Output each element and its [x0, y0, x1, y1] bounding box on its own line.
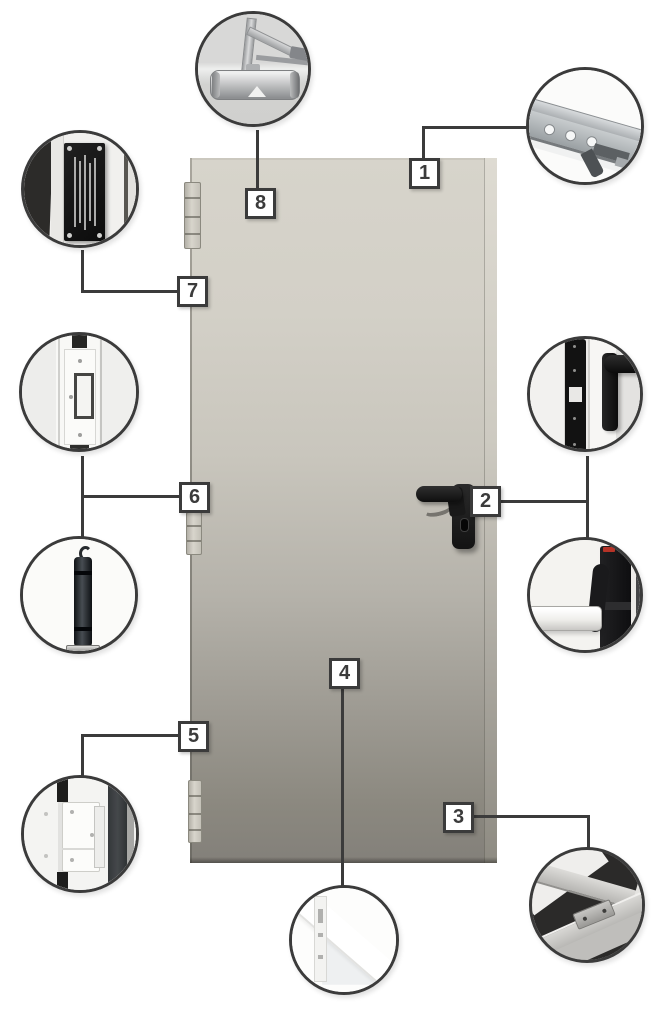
callout-line-8	[256, 130, 259, 190]
detail-circle-door-closer	[195, 11, 311, 127]
faceplate-screw	[573, 443, 576, 446]
data-plate-icon	[64, 143, 105, 241]
plate-text-line	[89, 163, 91, 221]
rail-detail	[318, 933, 323, 937]
callout-7-label: 7	[187, 280, 198, 303]
spring-band	[74, 627, 92, 631]
handle-grip-detail	[604, 355, 643, 373]
detail-circle-panic-bar	[527, 537, 643, 653]
plate-screw	[97, 233, 102, 238]
faceplate-screw	[573, 345, 576, 348]
plate-text-line	[79, 161, 81, 223]
plate-screw	[97, 146, 102, 151]
faceplate-detail	[573, 417, 576, 420]
closer-label-mark	[248, 86, 266, 97]
leaf-edge-rail	[314, 896, 327, 982]
hinge-gap-top	[57, 778, 68, 802]
detail-circle-data-plate	[21, 130, 139, 248]
hinge-gap-bottom	[57, 872, 68, 893]
hinge-screw	[70, 858, 74, 862]
callout-number-8: 8	[245, 188, 276, 219]
callout-number-1: 1	[409, 158, 440, 189]
callout-8-label: 8	[255, 192, 266, 215]
plate-screw	[582, 916, 587, 921]
rail-detail	[318, 955, 323, 959]
hinge-screw	[78, 433, 82, 437]
callout-number-3: 3	[443, 802, 474, 833]
hinge-edge-line-left	[58, 335, 60, 452]
detail-circle-lock-edge	[527, 336, 643, 452]
plate-screw	[67, 233, 72, 238]
callout-2-label: 2	[480, 490, 491, 513]
lock-door-edge	[530, 339, 565, 452]
frame-face-strip	[134, 778, 139, 893]
door-handle	[416, 486, 462, 502]
plate-dark-gap	[21, 130, 53, 248]
spring-band	[74, 571, 92, 575]
hinge-gap-top	[72, 335, 87, 348]
hinge-screw	[69, 395, 73, 399]
callout-line-5-v	[81, 734, 84, 778]
frame-strip	[127, 778, 134, 893]
detail-circle-leaf-corner	[289, 885, 399, 995]
door-callout-diagram: 1 2 3 4 5 6 7 8	[0, 0, 669, 1020]
rail-detail	[318, 909, 323, 923]
closer-end-cap-right	[290, 72, 299, 98]
hinge-screw	[78, 359, 82, 363]
faceplate-detail	[573, 369, 576, 372]
callout-number-6: 6	[179, 482, 210, 513]
callout-line-3-h	[472, 815, 590, 818]
callout-line-1-h	[422, 126, 530, 129]
spring-base-plate	[66, 645, 100, 652]
door-top-edge	[190, 158, 497, 160]
callout-number-2: 2	[470, 486, 501, 517]
callout-4-label: 4	[339, 662, 350, 685]
keyhole-icon	[461, 519, 468, 531]
callout-5-label: 5	[188, 725, 199, 748]
callout-line-5-h	[81, 734, 180, 737]
plate-right-strip	[128, 133, 139, 248]
callout-number-4: 4	[329, 658, 360, 689]
callout-line-7-v	[81, 250, 84, 293]
plate-text-line	[74, 157, 76, 227]
callout-1-label: 1	[419, 162, 430, 185]
detail-circle-frame-corner	[529, 847, 645, 963]
plate-screw	[602, 908, 607, 913]
callout-line-2-v	[586, 456, 589, 540]
detail-circle-bottom-hinge	[21, 775, 139, 893]
closer-end-cap-left	[212, 72, 220, 98]
anchor-hole	[564, 129, 578, 143]
middle-hinge	[186, 512, 202, 555]
callout-6-label: 6	[189, 486, 200, 509]
callout-line-1-v	[422, 126, 425, 160]
anchor-hole	[543, 123, 557, 137]
callout-line-3-v	[587, 815, 590, 850]
frame-rebate-band	[108, 778, 127, 893]
callout-number-7: 7	[177, 276, 208, 307]
plate-screw	[67, 146, 72, 151]
panic-red-mark	[603, 547, 615, 552]
detail-circle-hinge	[19, 332, 139, 452]
top-hinge	[184, 182, 201, 249]
callout-3-label: 3	[453, 806, 464, 829]
detail-circle-closing-spring	[20, 536, 138, 654]
callout-line-6-h	[81, 495, 181, 498]
hinge-screw	[44, 854, 48, 858]
lock-latch-icon	[569, 387, 582, 402]
plate-door-edge	[51, 133, 64, 248]
hinge-flap	[94, 806, 105, 868]
hinge-screw	[44, 812, 48, 816]
callout-line-4	[341, 688, 344, 888]
bottom-hinge	[188, 780, 202, 843]
hinge-edge-line-right	[100, 335, 102, 452]
hinge-adjuster-frame	[74, 373, 94, 419]
panic-frame-strip	[636, 562, 643, 634]
callout-line-2-h	[499, 500, 589, 503]
callout-line-7-h	[81, 290, 179, 293]
detail-circle-frame-anchor	[526, 67, 644, 185]
panic-push-bar-icon	[527, 606, 602, 631]
hinge-screw	[70, 810, 74, 814]
callout-number-5: 5	[178, 721, 209, 752]
plate-text-line	[94, 158, 96, 226]
plate-text-line	[84, 155, 86, 230]
